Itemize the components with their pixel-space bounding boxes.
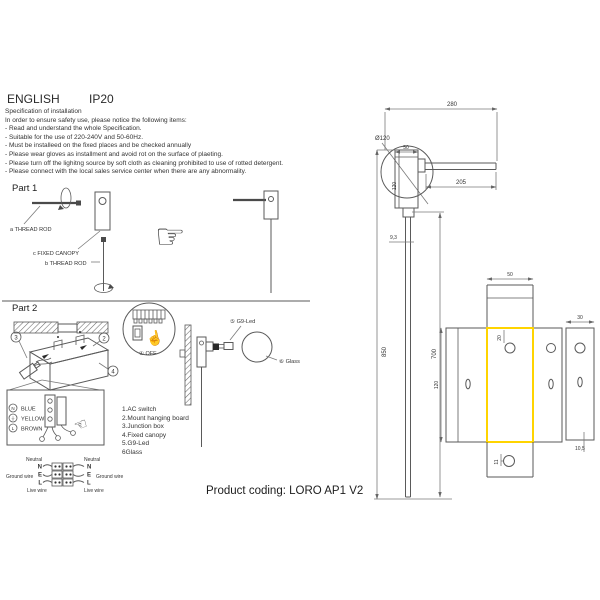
thread-rod-a-label: a THREAD ROD	[10, 227, 52, 233]
ac-switch-inset: ☝ ① OFF	[123, 303, 175, 357]
canopy-box-drawing	[30, 331, 108, 390]
terminal-earth-symbol: ⏚	[11, 415, 16, 421]
svg-text:3: 3	[14, 336, 18, 342]
arm-drawing	[418, 159, 496, 172]
dim-120-canopy: 120	[392, 182, 398, 191]
terminal-l-left: L	[38, 481, 42, 487]
wire-color-yellow: YELLOW	[21, 417, 45, 423]
assembled-fixture-drawing	[233, 191, 278, 293]
dim-280: 280	[447, 102, 458, 108]
rod-drawing	[403, 208, 414, 497]
dim-11: 11	[494, 459, 500, 464]
dim-50-canopy: 50	[403, 145, 409, 151]
part2-diagram: 3 2 4	[6, 303, 300, 494]
wire-color-legend: N BLUE ⏚ YELLOW L BROWN	[9, 404, 45, 433]
wire-color-brown: BROWN	[21, 427, 42, 433]
thread-rod-a-drawing	[24, 188, 81, 224]
technical-drawing: 280 Ø120 50 120 205	[374, 102, 594, 499]
terminal-n-right: N	[87, 465, 91, 471]
neutral-label-right: Neutral	[84, 457, 100, 463]
plug-drawing	[20, 358, 52, 379]
pointing-hand-icon: ☞	[155, 218, 185, 256]
live-label-left: Live wire	[27, 488, 47, 494]
dim-700: 700	[432, 348, 438, 359]
dim-10-5: 10,5	[575, 446, 585, 452]
canopy-side-view	[395, 150, 418, 208]
off-switch-label: ① OFF	[139, 350, 157, 357]
glass-globe-drawing	[242, 332, 272, 362]
mains-wiring-diagram: Neutral Neutral Ground wire Ground wire …	[6, 457, 123, 494]
g9-leader	[230, 326, 241, 340]
terminal-e-left: E	[38, 473, 42, 479]
callout-3: 3	[11, 332, 27, 358]
installation-sheet: ENGLISH IP20 Specification of installati…	[0, 0, 600, 600]
line-art-canvas: a THREAD ROD c FIXED CANOPY b THREAD ROD…	[0, 0, 600, 600]
g9-led-drawing	[219, 343, 233, 350]
terminal-e-right: E	[87, 473, 91, 479]
detail-leader-right	[42, 380, 100, 390]
fixed-canopy-label: c FIXED CANOPY	[33, 251, 79, 257]
g9-led-label: ⑤ G9-Led	[230, 318, 255, 325]
svg-text:4: 4	[111, 370, 115, 376]
terminal-n-symbol: N	[11, 406, 14, 411]
dim-9-3: 9,3	[390, 235, 397, 241]
mounting-plate-drawing: 50 20 120 11	[434, 272, 594, 477]
ceiling-drawing	[14, 322, 108, 333]
dim-850: 850	[382, 346, 388, 357]
ground-label-left: Ground wire	[6, 474, 33, 480]
thread-rod-b-label: b THREAD ROD	[45, 261, 87, 267]
detail-leader-left	[9, 380, 42, 390]
dim-205: 205	[456, 180, 467, 186]
callout-2: 2	[93, 333, 109, 346]
terminal-l-right: L	[87, 481, 91, 487]
part1-diagram: a THREAD ROD c FIXED CANOPY b THREAD ROD…	[2, 188, 310, 301]
svg-text:2: 2	[102, 337, 106, 343]
dim-diameter: Ø120	[375, 136, 390, 142]
highlight-rect	[487, 328, 533, 442]
glass-label: ⑥ Glass	[279, 358, 300, 365]
pressing-hand-icon: ☝	[144, 327, 165, 348]
terminal-n-left: N	[38, 465, 42, 471]
dim-120-plate: 120	[434, 381, 440, 390]
dim-20: 20	[497, 335, 503, 341]
dim-30: 30	[577, 315, 583, 321]
terminal-l-symbol: L	[12, 426, 15, 431]
wall-mounted-lamp-drawing	[180, 325, 219, 447]
live-label-right: Live wire	[84, 488, 104, 494]
thread-rod-b-drawing	[91, 237, 114, 293]
holding-hand-icon: ☜	[72, 415, 90, 436]
wire-color-blue: BLUE	[21, 407, 36, 413]
ground-label-right: Ground wire	[96, 474, 123, 480]
neutral-label-left: Neutral	[26, 457, 42, 463]
dim-50-tab: 50	[507, 272, 513, 278]
